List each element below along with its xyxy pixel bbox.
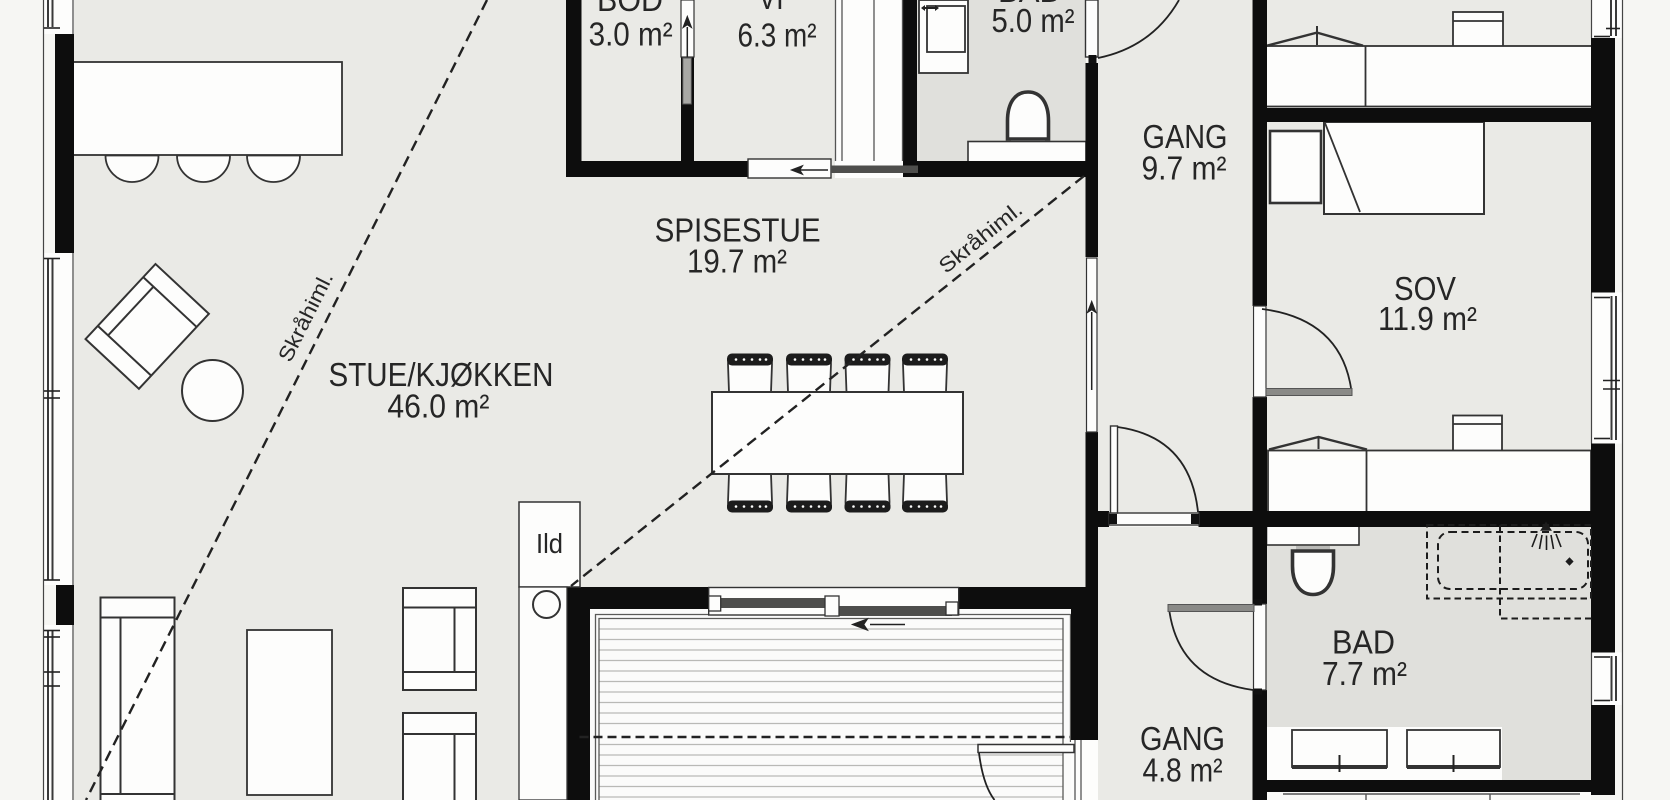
svg-text:11.9 m²: 11.9 m² xyxy=(1378,300,1477,337)
svg-text:5.0 m²: 5.0 m² xyxy=(992,2,1075,39)
svg-text:46.0 m²: 46.0 m² xyxy=(387,388,489,425)
svg-text:3.0 m²: 3.0 m² xyxy=(589,16,673,53)
svg-text:7.7 m²: 7.7 m² xyxy=(1322,655,1407,692)
svg-text:VF: VF xyxy=(758,0,793,16)
svg-text:Ild: Ild xyxy=(536,528,563,559)
svg-text:19.7 m²: 19.7 m² xyxy=(687,243,787,280)
svg-text:6.3 m²: 6.3 m² xyxy=(738,17,817,54)
svg-text:9.7 m²: 9.7 m² xyxy=(1142,150,1227,187)
svg-text:4.8 m²: 4.8 m² xyxy=(1143,752,1223,789)
